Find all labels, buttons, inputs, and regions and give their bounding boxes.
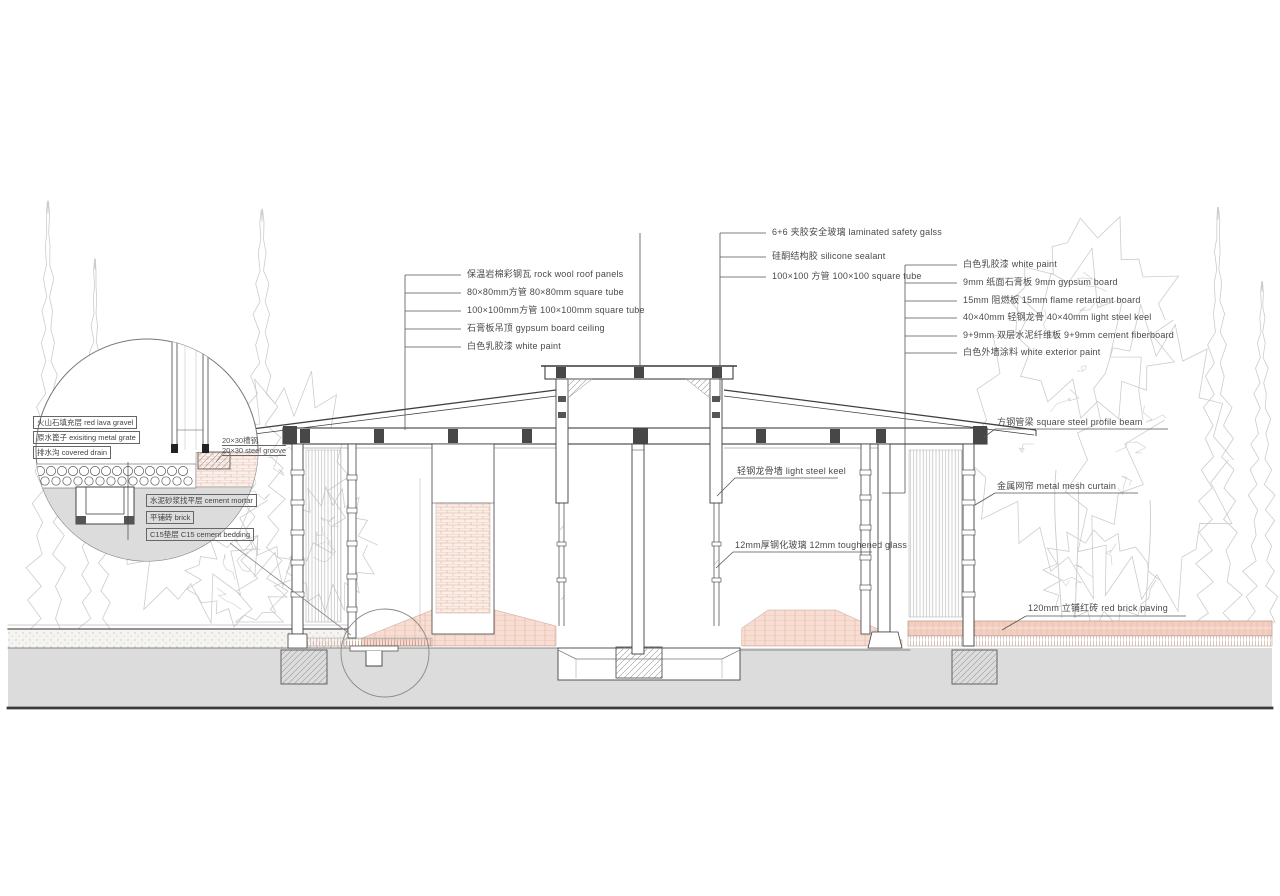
gravel-stone	[151, 477, 159, 485]
gravel-stone	[41, 477, 49, 485]
gravel-stone	[63, 477, 71, 485]
gravel-stone	[162, 477, 170, 485]
gravel-stone	[101, 466, 110, 475]
label-cement-mortar: 水泥砂浆找平层 cement mortar	[146, 494, 257, 507]
label-laminated-safety-glass: 6+6 夹胶安全玻璃 laminated safety galss	[772, 227, 942, 238]
gravel-stone	[90, 466, 99, 475]
section-linework	[0, 0, 1280, 896]
label-steel-groove-zh: 20×30槽钢	[222, 436, 286, 446]
gravel-stone	[118, 477, 126, 485]
gravel-stone	[107, 477, 115, 485]
building-section	[244, 366, 1036, 654]
gravel-stone	[46, 466, 55, 475]
tree-outline	[217, 588, 241, 609]
gravel-stone	[129, 477, 137, 485]
label-white-paint-left: 白色乳胶漆 white paint	[467, 341, 561, 352]
label-80x80-square-tube: 80×80mm方管 80×80mm square tube	[467, 287, 624, 298]
gravel-stone	[140, 477, 148, 485]
label-40x40-light-steel-keel: 40×40mm 轻钢龙骨 40×40mm light steel keel	[963, 312, 1151, 323]
gravel-stone	[52, 477, 60, 485]
label-15mm-flame-retardant-board: 15mm 阻燃板 15mm flame retardant board	[963, 295, 1141, 306]
label-gypsum-board-ceiling: 石膏板吊顶 gypsum board ceiling	[467, 323, 605, 334]
label-white-paint-right: 白色乳胶漆 white paint	[963, 259, 1057, 270]
label-100x100mm-square-tube: 100×100mm方管 100×100mm square tube	[467, 305, 645, 316]
tree-outline	[1106, 544, 1116, 565]
label-12mm-toughened-glass: 12mm厚钢化玻璃 12mm toughened glass	[735, 540, 907, 551]
tree-outline	[1077, 366, 1086, 372]
tree-outline	[1143, 405, 1166, 422]
label-square-steel-profile-beam: 方钢管梁 square steel profile beam	[997, 417, 1143, 428]
label-9mm-gypsum-board: 9mm 纸面石膏板 9mm gypsum board	[963, 277, 1118, 288]
tree-outline	[1019, 444, 1034, 453]
gravel-stone	[134, 466, 143, 475]
gravel-stone	[112, 466, 121, 475]
tree-outline	[1051, 389, 1079, 412]
gravel-stone	[167, 466, 176, 475]
label-metal-mesh-curtain: 金属网帘 metal mesh curtain	[997, 481, 1116, 492]
tree-outline	[1043, 530, 1160, 633]
label-c15-cement-bedding: C15垫层 C15 cement bedding	[146, 528, 254, 541]
gravel-stone	[184, 477, 192, 485]
tree-outline	[223, 554, 235, 580]
gravel-stone	[57, 466, 66, 475]
label-silicone-sealant: 硅酮结构胶 silicone sealant	[772, 251, 885, 262]
label-existing-metal-grate: 原水篦子 exisiting metal grate	[33, 431, 140, 444]
label-steel-groove-en: 20×30 steel groove	[222, 446, 286, 456]
label-steel-groove: 20×30槽钢 20×30 steel groove	[222, 436, 286, 456]
label-100x100-square-tube: 100×100 方管 100×100 square tube	[772, 271, 922, 282]
gravel-stone	[156, 466, 165, 475]
architectural-section-drawing: 保温岩棉彩钢瓦 rock wool roof panels 80×80mm方管 …	[0, 0, 1280, 896]
tree-outline	[1062, 577, 1081, 590]
gravel-stone	[74, 477, 82, 485]
tree-outline	[1115, 442, 1145, 453]
gravel-stone	[85, 477, 93, 485]
gravel-stone	[68, 466, 77, 475]
tree-outline	[267, 456, 284, 475]
gravel-stone	[79, 466, 88, 475]
gravel-stone	[173, 477, 181, 485]
label-9plus9mm-cement-fiberboard: 9+9mm 双层水泥纤维板 9+9mm cement fiberboard	[963, 330, 1174, 341]
gravel-stone	[145, 466, 154, 475]
gravel-stone	[96, 477, 104, 485]
gravel-stone	[178, 466, 187, 475]
label-red-brick-paving: 120mm 立铺红砖 red brick paving	[1028, 603, 1168, 614]
label-brick: 平铺砖 brick	[146, 511, 194, 524]
tree-outline	[1243, 281, 1278, 622]
tree-outline	[1191, 207, 1243, 626]
label-rock-wool-roof-panels: 保温岩棉彩钢瓦 rock wool roof panels	[467, 269, 623, 280]
label-white-exterior-paint: 白色外墙涂料 white exterior paint	[963, 347, 1100, 358]
label-covered-drain: 排水沟 covered drain	[33, 446, 111, 459]
label-light-steel-keel: 轻钢龙骨墙 light steel keel	[737, 466, 846, 477]
label-red-lava-gravel: 火山石填充层 red lava gravel	[33, 416, 137, 429]
tree-outline	[1145, 500, 1151, 615]
